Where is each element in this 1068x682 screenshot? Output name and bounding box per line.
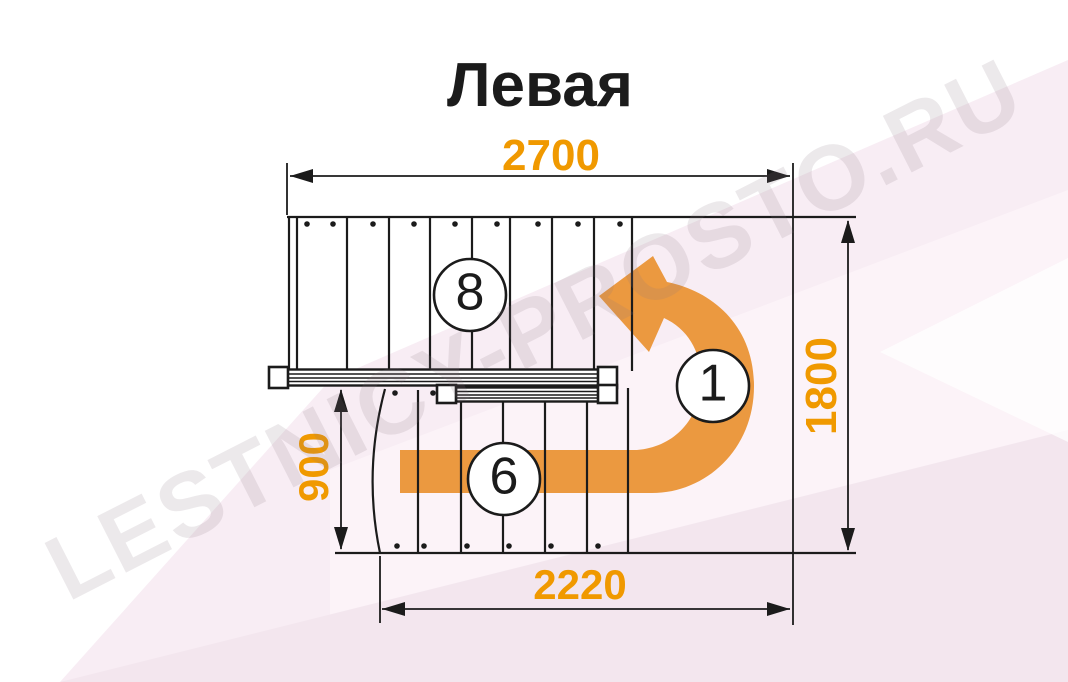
dimension-top-label: 2700 [502, 131, 600, 181]
lower-flight-step-count: 6 [490, 447, 519, 507]
turn-number: 1 [699, 354, 728, 414]
dimension-bottom-label: 2220 [533, 561, 626, 609]
upper-flight-screw-dots [304, 221, 623, 227]
page-title: Левая [447, 50, 633, 121]
dimension-left-label: 900 [290, 432, 338, 502]
staircase-plan-page: Левая 2700 1800 900 2220 8 1 6 LESTNICY-… [0, 0, 1068, 682]
dimension-right-label: 1800 [797, 337, 847, 435]
upper-flight-step-count: 8 [456, 263, 485, 323]
